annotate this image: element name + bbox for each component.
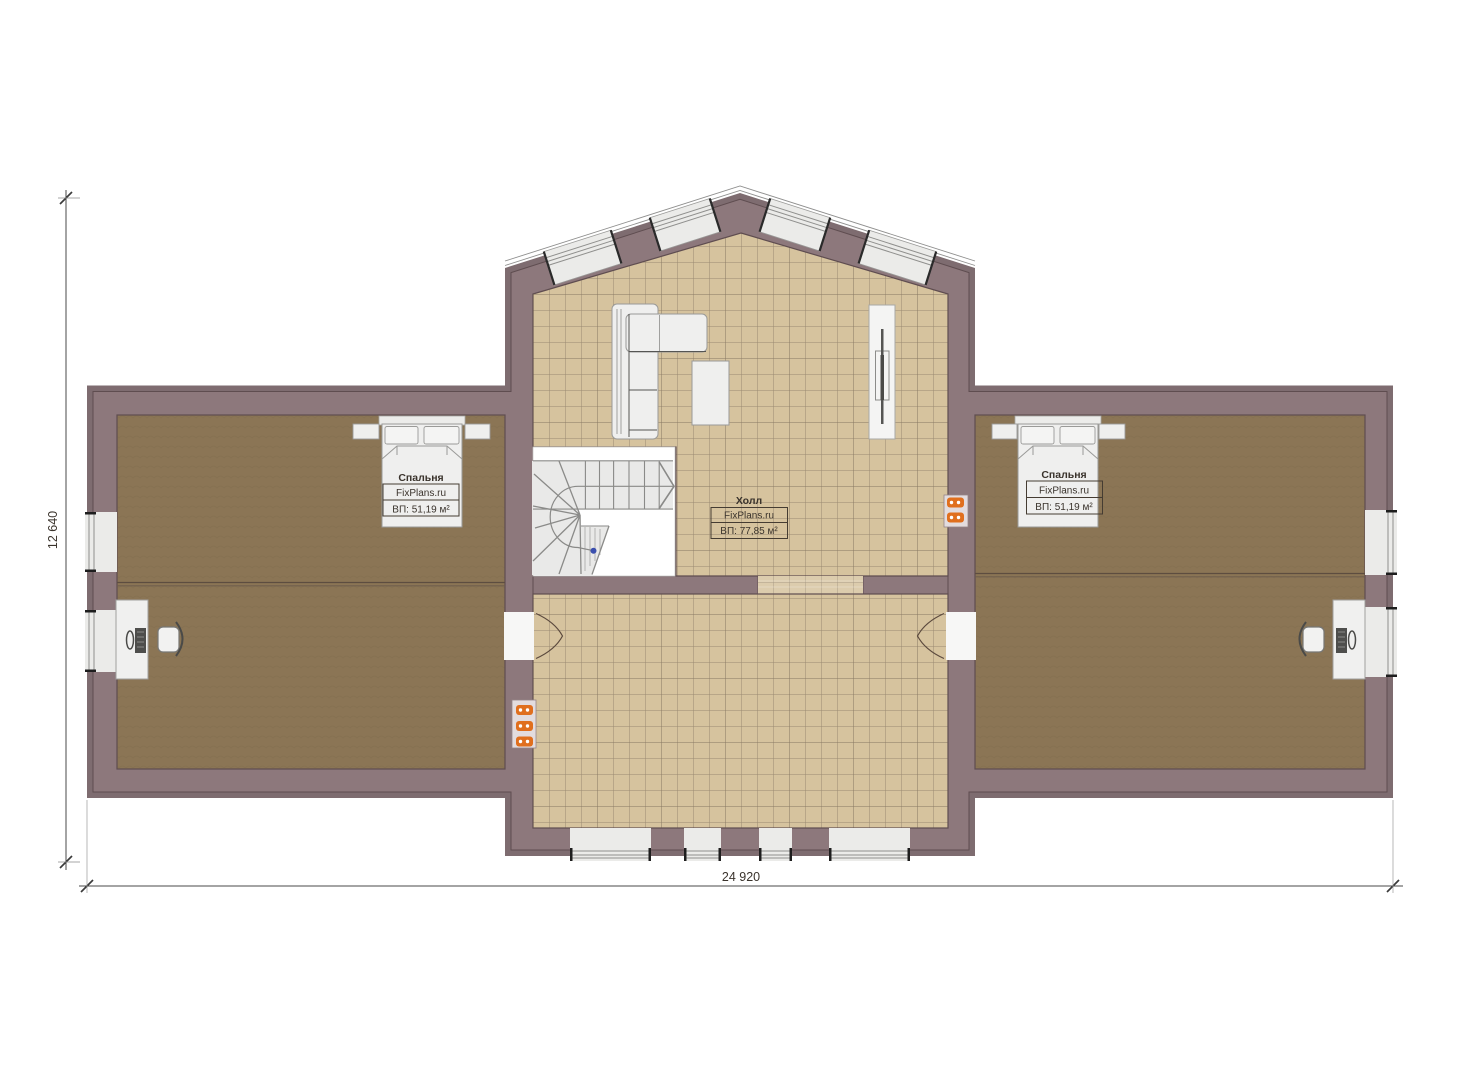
svg-text:FixPlans.ru: FixPlans.ru [396,488,446,499]
svg-text:Холл: Холл [736,495,762,507]
svg-text:ВП: 77,85 м²: ВП: 77,85 м² [720,526,778,537]
svg-text:ВП: 51,19 м²: ВП: 51,19 м² [392,505,450,516]
svg-text:Спальня: Спальня [398,472,443,484]
svg-text:12 640: 12 640 [46,511,60,549]
svg-text:FixPlans.ru: FixPlans.ru [724,511,774,522]
svg-text:Спальня: Спальня [1041,469,1086,481]
svg-text:FixPlans.ru: FixPlans.ru [1039,486,1089,497]
svg-text:ВП: 51,19 м²: ВП: 51,19 м² [1035,502,1093,513]
svg-text:24 920: 24 920 [722,870,760,884]
